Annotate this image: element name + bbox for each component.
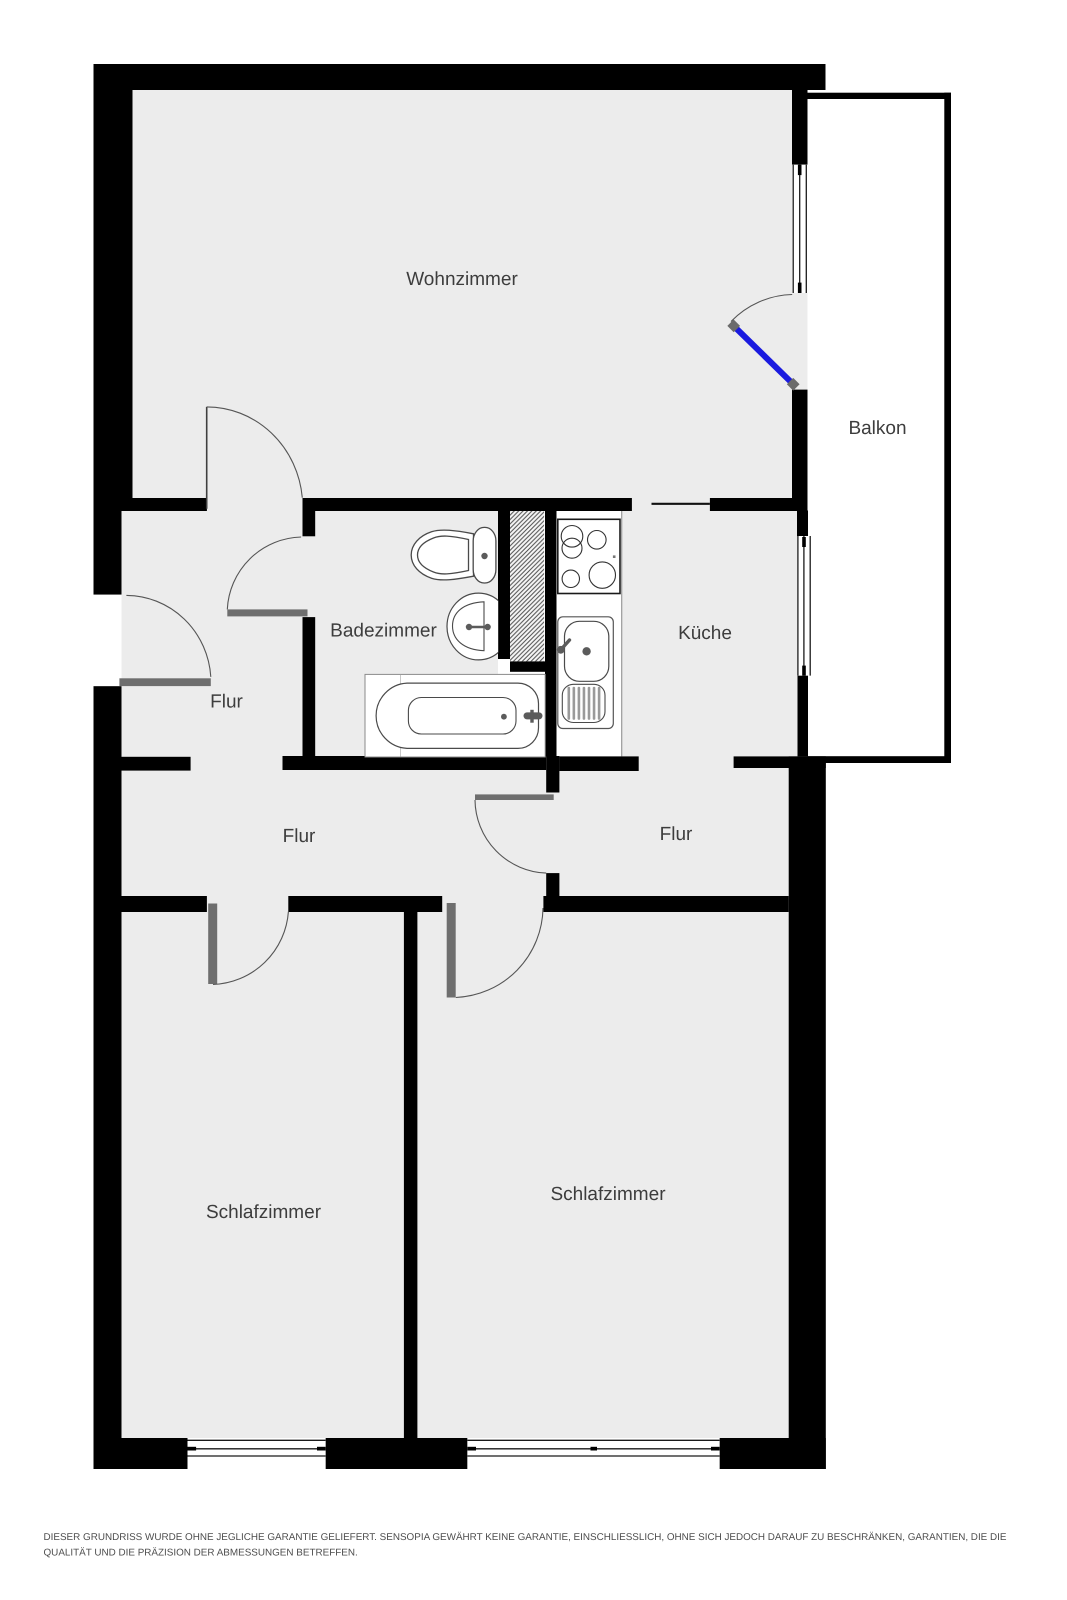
svg-text:Küche: Küche: [678, 623, 732, 644]
svg-text:QUALITÄT UND DIE PRÄZISION DER: QUALITÄT UND DIE PRÄZISION DER ABMESSUNG…: [44, 1546, 358, 1558]
svg-text:Flur: Flur: [660, 824, 693, 845]
svg-text:Balkon: Balkon: [848, 418, 906, 439]
svg-text:Flur: Flur: [283, 826, 316, 847]
svg-text:Flur: Flur: [210, 691, 243, 712]
svg-text:Wohnzimmer: Wohnzimmer: [406, 269, 518, 290]
svg-text:Schlafzimmer: Schlafzimmer: [550, 1184, 666, 1205]
svg-text:Badezimmer: Badezimmer: [330, 620, 437, 641]
svg-text:DIESER GRUNDRISS WURDE OHNE JE: DIESER GRUNDRISS WURDE OHNE JEGLICHE GAR…: [44, 1531, 1007, 1543]
svg-text:Schlafzimmer: Schlafzimmer: [206, 1202, 322, 1223]
